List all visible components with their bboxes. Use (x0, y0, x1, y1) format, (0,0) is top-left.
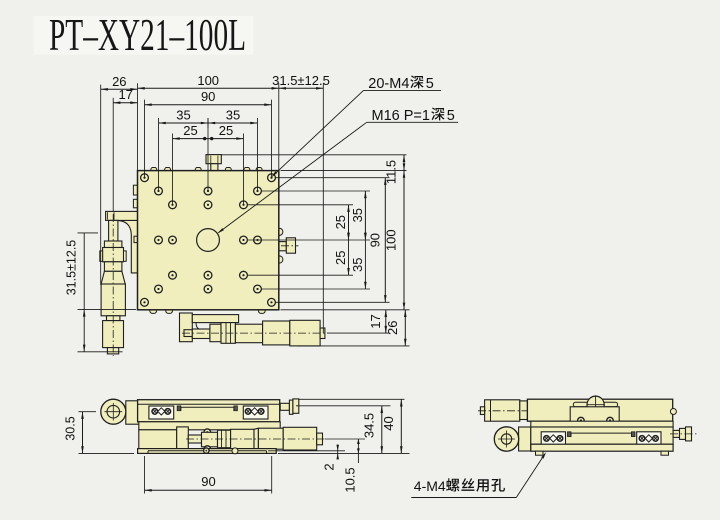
svg-text:4-M4: 4-M4 (414, 478, 446, 494)
svg-text:30.5: 30.5 (63, 416, 77, 440)
svg-text:11.5: 11.5 (383, 160, 398, 184)
svg-text:25: 25 (219, 123, 233, 138)
svg-text:35: 35 (176, 108, 190, 123)
svg-text:35: 35 (226, 108, 240, 123)
svg-text:17: 17 (368, 314, 383, 328)
svg-text:40: 40 (381, 416, 396, 430)
svg-text:25: 25 (333, 215, 348, 229)
svg-text:90: 90 (201, 89, 215, 104)
svg-text:10.5: 10.5 (342, 467, 357, 492)
svg-text:17: 17 (118, 87, 132, 102)
svg-text:34.5: 34.5 (361, 413, 376, 438)
svg-text:5: 5 (426, 76, 434, 92)
svg-text:PT–XY21–100L: PT–XY21–100L (49, 9, 246, 60)
svg-text:20-M4: 20-M4 (368, 76, 409, 92)
svg-text:35: 35 (350, 258, 365, 272)
svg-text:100: 100 (383, 229, 398, 251)
svg-text:25: 25 (183, 123, 197, 138)
svg-text:31.5±12.5: 31.5±12.5 (272, 73, 330, 88)
svg-text:2: 2 (322, 463, 337, 470)
svg-text:25: 25 (333, 251, 348, 265)
svg-text:M16 P=1: M16 P=1 (372, 108, 430, 124)
svg-text:5: 5 (447, 108, 455, 124)
svg-text:35: 35 (350, 208, 365, 222)
svg-text:90: 90 (367, 233, 382, 247)
svg-text:100: 100 (197, 73, 219, 88)
svg-text:26: 26 (385, 321, 400, 335)
svg-text:90: 90 (201, 474, 215, 489)
svg-text:31.5±12.5: 31.5±12.5 (65, 240, 79, 296)
